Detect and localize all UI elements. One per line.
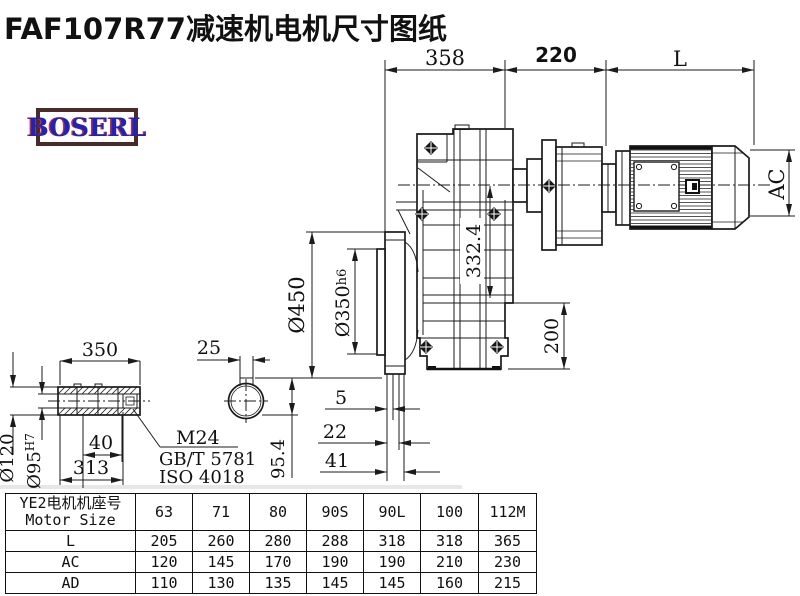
table-cell: 190	[364, 552, 421, 573]
dim-offset-b: 22	[323, 421, 347, 443]
table-cell: 260	[193, 531, 250, 552]
dim-hub-od: Ø120	[0, 433, 18, 482]
table-cell: 110	[136, 573, 193, 594]
note-thread: M24	[176, 427, 220, 449]
table-cell: 190	[307, 552, 364, 573]
table-col-header: 90L	[364, 494, 421, 531]
table-cell: 205	[136, 531, 193, 552]
dim-spigot: Ø350h6	[332, 269, 354, 338]
gearmotor-front-view	[377, 125, 772, 481]
dim-key-height: 95.4	[268, 439, 289, 479]
table-row: AC 120 145 170 190 190 210 230	[6, 552, 537, 573]
header-en: Motor Size	[6, 512, 135, 529]
header-cn: YE2电机机座号	[6, 495, 135, 512]
dim-bore-step: 40	[89, 432, 113, 454]
dim-axis-distance: 332.4	[463, 224, 485, 278]
dim-offset-c: 41	[325, 450, 349, 472]
table-cell: 365	[479, 531, 537, 552]
table-cell: 318	[364, 531, 421, 552]
table-col-header: 112M	[479, 494, 537, 531]
dim-motor-diameter: AC	[765, 168, 789, 200]
table-cell: 120	[136, 552, 193, 573]
motor-size-table: YE2电机机座号 Motor Size 63 71 80 90S 90L 100…	[5, 493, 537, 594]
table-cell: 280	[250, 531, 307, 552]
table-col-header: 71	[193, 494, 250, 531]
table-cell: 160	[421, 573, 479, 594]
table-cell: 318	[421, 531, 479, 552]
row-label: AD	[6, 573, 136, 594]
table-col-header: 63	[136, 494, 193, 531]
table-cell: 145	[364, 573, 421, 594]
dim-top-width: 358	[425, 46, 465, 70]
dim-hub-length: 313	[73, 457, 109, 479]
row-label: AC	[6, 552, 136, 573]
table-cell: 130	[193, 573, 250, 594]
table-cell: 135	[250, 573, 307, 594]
dim-offset-a: 5	[335, 387, 347, 409]
table-cell: 145	[307, 573, 364, 594]
table-cell: 145	[193, 552, 250, 573]
drawing-page: FAF107R77减速机电机尺寸图纸 BOSERL	[0, 0, 800, 596]
table-row: L 205 260 280 288 318 318 365	[6, 531, 537, 552]
table-row: AD 110 130 135 145 145 160 215	[6, 573, 537, 594]
table-header-motor-size: YE2电机机座号 Motor Size	[6, 494, 136, 531]
table-col-header: 100	[421, 494, 479, 531]
dim-bore: Ø95H7	[23, 433, 45, 489]
dim-top-mid: 220	[535, 43, 577, 67]
table-col-header: 80	[250, 494, 307, 531]
row-label: L	[6, 531, 136, 552]
dim-bottom-height: 200	[541, 318, 563, 354]
table-col-header: 90S	[307, 494, 364, 531]
note-standard-iso: ISO 4018	[159, 467, 245, 488]
table-cell: 230	[479, 552, 537, 573]
dim-shaft-length: 350	[82, 339, 118, 361]
table-header-row: YE2电机机座号 Motor Size 63 71 80 90S 90L 100…	[6, 494, 537, 531]
table-cell: 215	[479, 573, 537, 594]
dim-motor-length: L	[673, 47, 687, 71]
table-cell: 170	[250, 552, 307, 573]
table-cell: 210	[421, 552, 479, 573]
dim-shaft-end: 25	[197, 337, 221, 359]
table-cell: 288	[307, 531, 364, 552]
hollow-shaft-detail-view	[48, 356, 268, 447]
dim-flange-od: Ø450	[285, 276, 309, 333]
